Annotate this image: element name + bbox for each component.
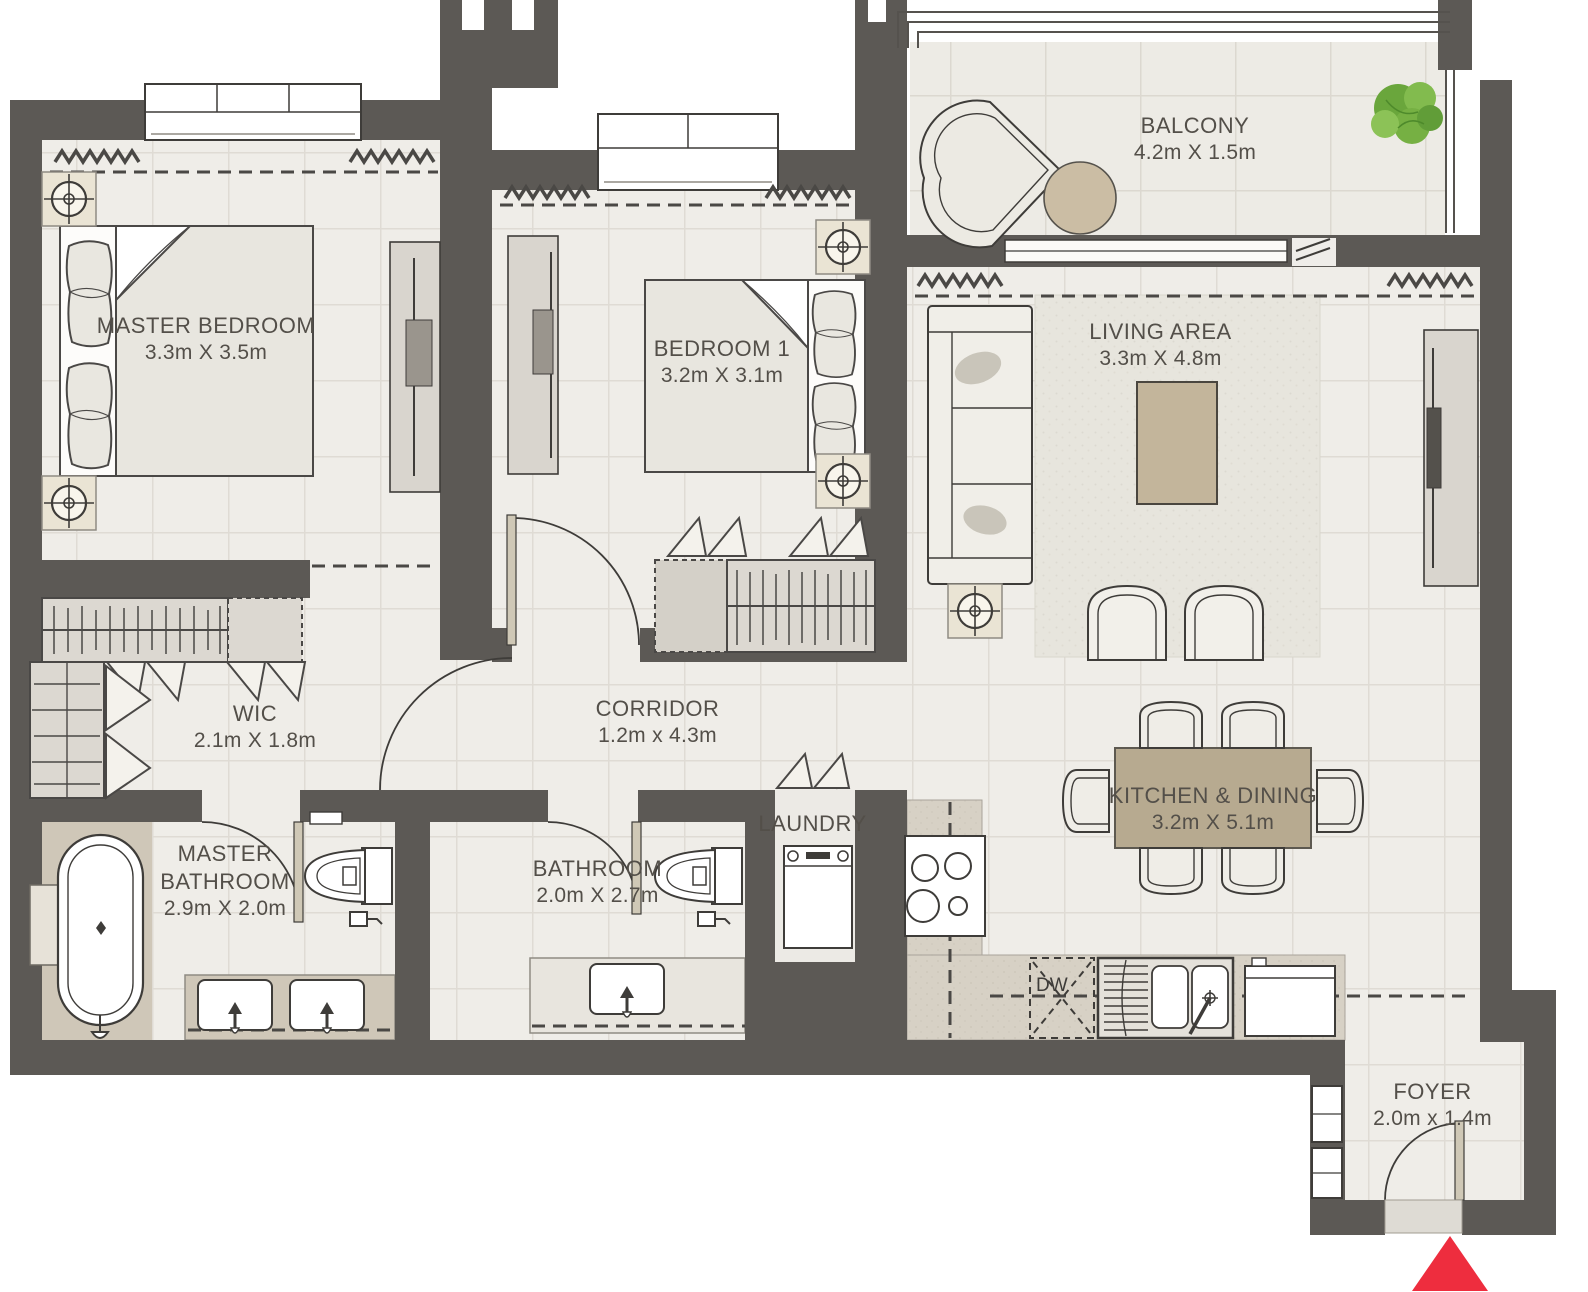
pillow	[67, 363, 112, 468]
vanity-sink	[198, 980, 272, 1033]
sofa	[928, 306, 1032, 584]
entry-arrow	[1412, 1236, 1488, 1291]
shelf	[310, 812, 342, 824]
dining-chair	[1140, 848, 1202, 894]
nightstand-lamp-icon	[42, 172, 96, 226]
bathtub	[58, 835, 143, 1038]
dining-chair	[1063, 770, 1109, 832]
dining-chair	[1317, 770, 1363, 832]
kitchen-sink	[1098, 958, 1233, 1038]
balcony-slider-icon	[1292, 238, 1336, 266]
wardrobe-tv-unit	[508, 236, 558, 474]
pillow	[67, 241, 112, 346]
parapet-notches	[462, 0, 886, 30]
lounge-chair	[1185, 586, 1263, 660]
vanity-sink	[290, 980, 364, 1033]
nightstand-lamp-icon	[816, 220, 870, 274]
pillow	[813, 291, 856, 377]
dining-table	[1115, 748, 1311, 848]
tv-unit	[1424, 330, 1478, 586]
dining-chair	[1140, 702, 1202, 748]
dining-chair	[1222, 848, 1284, 894]
dining-chair	[1222, 702, 1284, 748]
living-glass-wall	[1005, 240, 1287, 262]
wardrobe-tv-unit	[390, 242, 440, 492]
vanity-sink	[590, 964, 664, 1017]
dishwasher-label: DW	[1036, 975, 1068, 997]
floor-plan-drawing	[0, 0, 1588, 1292]
wall-niche	[30, 885, 58, 965]
fridge	[1245, 958, 1335, 1036]
bedroom1-window	[598, 114, 778, 190]
lounge-chair	[1088, 586, 1166, 660]
master-bedroom-window	[145, 84, 361, 140]
stove	[905, 836, 985, 936]
floor-plan: MASTER BEDROOM3.3m X 3.5m BEDROOM 13.2m …	[0, 0, 1588, 1292]
floor-lamp-icon	[948, 584, 1002, 638]
washing-machine	[784, 846, 852, 948]
side-table	[1044, 162, 1116, 234]
nightstand-lamp-icon	[816, 454, 870, 508]
nightstand-lamp-icon	[42, 476, 96, 530]
entry-threshold	[1385, 1200, 1462, 1233]
coffee-table	[1137, 382, 1217, 504]
foyer-fixtures	[1312, 1086, 1342, 1198]
